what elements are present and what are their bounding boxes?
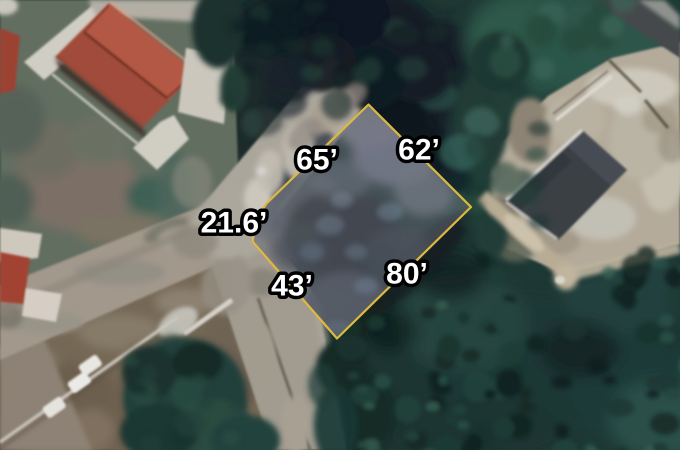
svg-text:21.6’: 21.6’ [201, 207, 268, 240]
svg-text:43’: 43’ [271, 270, 313, 303]
svg-text:65’: 65’ [296, 144, 338, 177]
svg-text:62’: 62’ [398, 134, 440, 167]
svg-text:80’: 80’ [386, 258, 428, 291]
